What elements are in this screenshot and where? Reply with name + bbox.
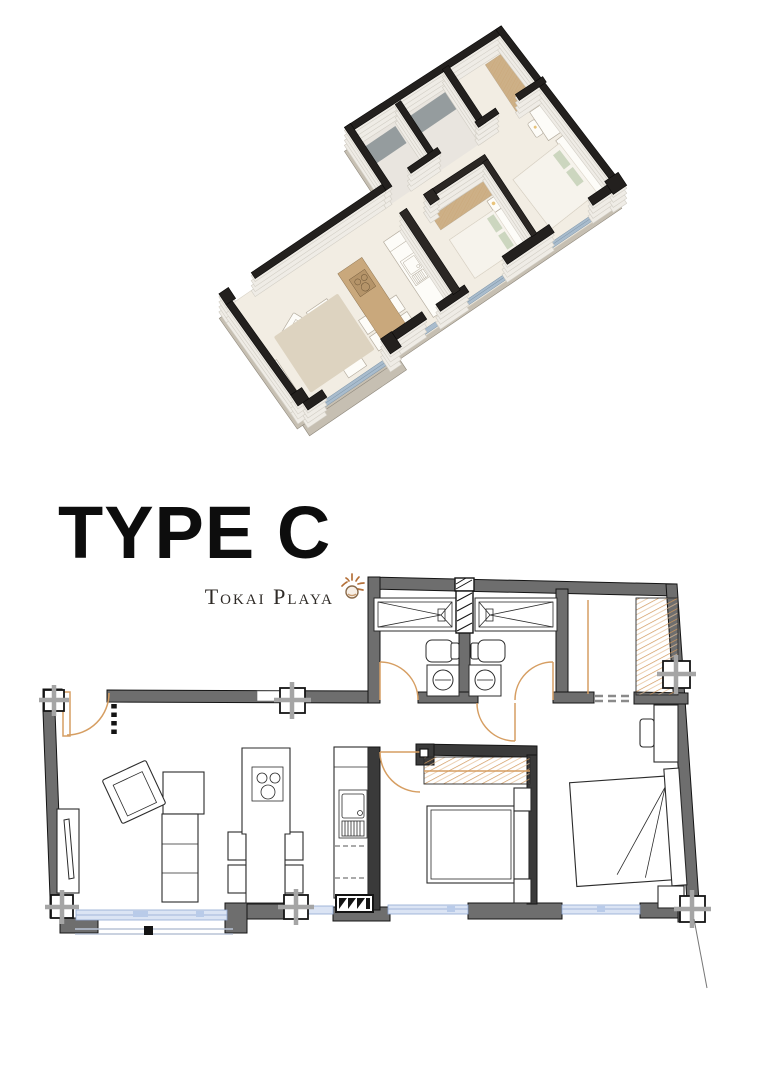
brand-lockup: Tokai Playa	[180, 584, 370, 610]
page-title: TYPE C	[58, 498, 331, 568]
sun-icon	[336, 570, 370, 610]
floor-plan-page: TYPE C Tokai Playa	[0, 0, 764, 1080]
apartment-3d-render	[182, 13, 630, 436]
floor-plan-2d	[39, 577, 711, 988]
brand-name: Tokai Playa	[205, 584, 334, 610]
